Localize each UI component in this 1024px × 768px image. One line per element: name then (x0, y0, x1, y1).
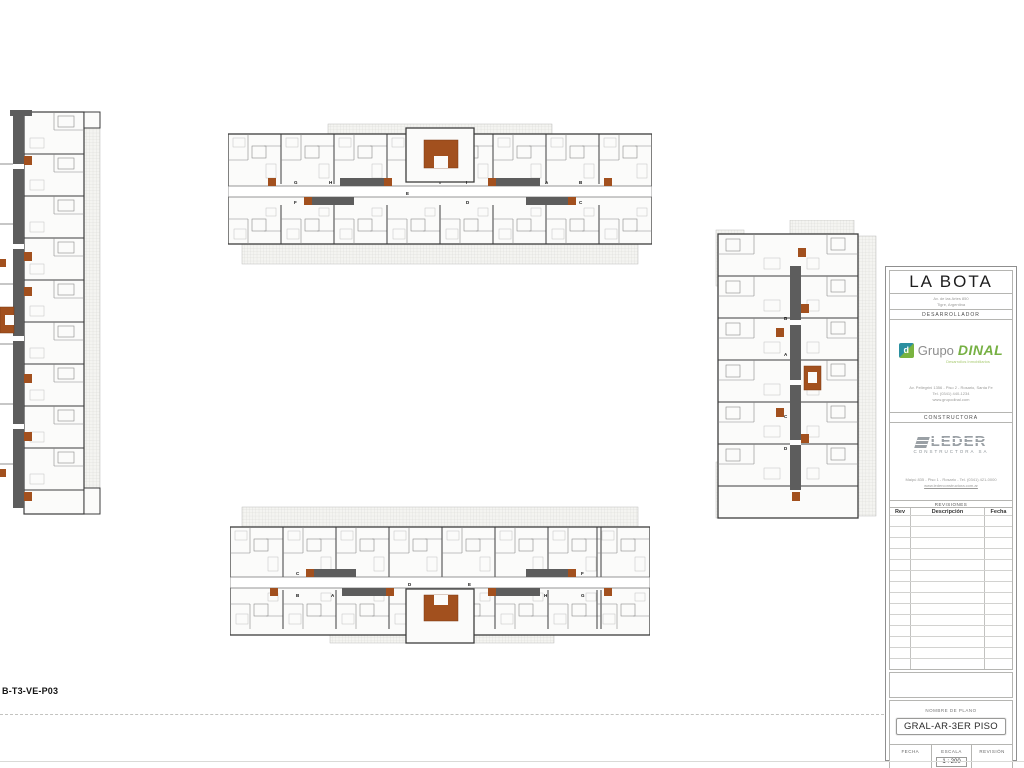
project-address-box: Av. de las Artes 850 Tigre, Argentina (889, 293, 1013, 310)
revision-row (890, 570, 1012, 581)
leder-logo-mark (914, 437, 930, 448)
top-plan-terrace-hatch (242, 242, 638, 264)
revision-label: REVISIÓN (979, 749, 1005, 754)
dinal-logo-word2: DINAL (958, 342, 1003, 358)
svg-text:F: F (581, 571, 584, 576)
svg-text:G: G (581, 593, 585, 598)
revisions-col-descripcion: Descripción (910, 508, 984, 515)
revision-row (890, 625, 1012, 636)
revision-row (890, 515, 1012, 526)
revision-row (890, 559, 1012, 570)
revisions-table (889, 515, 1013, 670)
top-plan-corridor (228, 186, 652, 197)
left-building-plan (0, 104, 106, 518)
project-address-line1: Av. de las Artes 850 (933, 296, 968, 301)
fecha-cell: FECHA (890, 745, 931, 768)
svg-text:I: I (466, 180, 467, 185)
constructor-logo-box: LEDER CONSTRUCTORA SA Maipú 835 - Piso 1… (889, 422, 1013, 501)
svg-text:H: H (329, 180, 332, 185)
leder-logo-name: LEDER (931, 435, 987, 449)
notes-box (889, 672, 1013, 698)
revision-row (890, 603, 1012, 614)
title-block-footer: FECHA ESCALA 1 : 200 REVISIÓN (889, 744, 1013, 768)
revisions-col-fecha: Fecha (984, 508, 1012, 515)
top-building-plan: G F H E I D A B C (228, 120, 652, 268)
escala-label: ESCALA (941, 749, 962, 754)
plan-name-label: NOMBRE DE PLANO (925, 708, 976, 713)
sheet-dashed-line (0, 714, 884, 715)
bottom-building-plan: C B A D E H F G (230, 503, 650, 655)
constructor-address: Maipú 835 - Piso 1 - Rosario - Tel. (034… (890, 477, 1012, 488)
revision-row (890, 592, 1012, 603)
fecha-label: FECHA (901, 749, 919, 754)
right-plan-corridor (790, 266, 801, 490)
dinal-logo-icon: d (899, 343, 914, 358)
revisions-col-rev: Rev (890, 508, 910, 515)
left-plan-corridor (13, 116, 24, 508)
left-plan-corridor-tip (10, 110, 32, 116)
left-plan-balcony-hatch (84, 128, 100, 488)
revision-row (890, 647, 1012, 658)
dinal-tagline: Desarrollos Inmobiliarios (924, 359, 1012, 364)
revision-cell: REVISIÓN (971, 745, 1012, 768)
plan-name-box: NOMBRE DE PLANO GRAL-AR-3ER PISO (889, 700, 1013, 745)
revision-row (890, 548, 1012, 559)
revision-row (890, 581, 1012, 592)
sheet-code: B-T3-VE-P03 (2, 686, 58, 696)
developer-logo-box: d Grupo DINAL Desarrollos Inmobiliarios … (889, 319, 1013, 413)
revision-row (890, 526, 1012, 537)
bottom-plan-terrace-hatch (242, 507, 638, 529)
svg-text:G: G (294, 180, 298, 185)
svg-text:E: E (406, 191, 409, 196)
svg-text:E: E (468, 582, 471, 587)
right-building-plan: B A C D (712, 220, 878, 532)
dinal-logo-word1: Grupo (918, 343, 954, 358)
revision-row (890, 658, 1012, 669)
plan-name: GRAL-AR-3ER PISO (896, 718, 1006, 735)
revision-row (890, 614, 1012, 625)
sheet-border-line (0, 761, 1024, 762)
revision-row (890, 636, 1012, 647)
svg-text:F: F (294, 200, 297, 205)
project-name: LA BOTA (909, 272, 993, 292)
drawing-sheet: G F H E I D A B C (0, 0, 1024, 768)
title-block: LA BOTA Av. de las Artes 850 Tigre, Arge… (885, 266, 1017, 761)
svg-text:H: H (544, 593, 547, 598)
escala-value: 1 : 200 (936, 757, 966, 767)
escala-cell: ESCALA 1 : 200 (931, 745, 972, 768)
developer-address: Av. Pellegrini 1356 - Piso 2 - Rosario, … (890, 385, 1012, 402)
project-title-box: LA BOTA (889, 270, 1013, 294)
project-address-line2: Tigre, Argentina (937, 302, 965, 307)
right-plan-balcony-hatch (858, 236, 876, 516)
revision-row (890, 537, 1012, 548)
bottom-plan-corridor (230, 577, 650, 588)
